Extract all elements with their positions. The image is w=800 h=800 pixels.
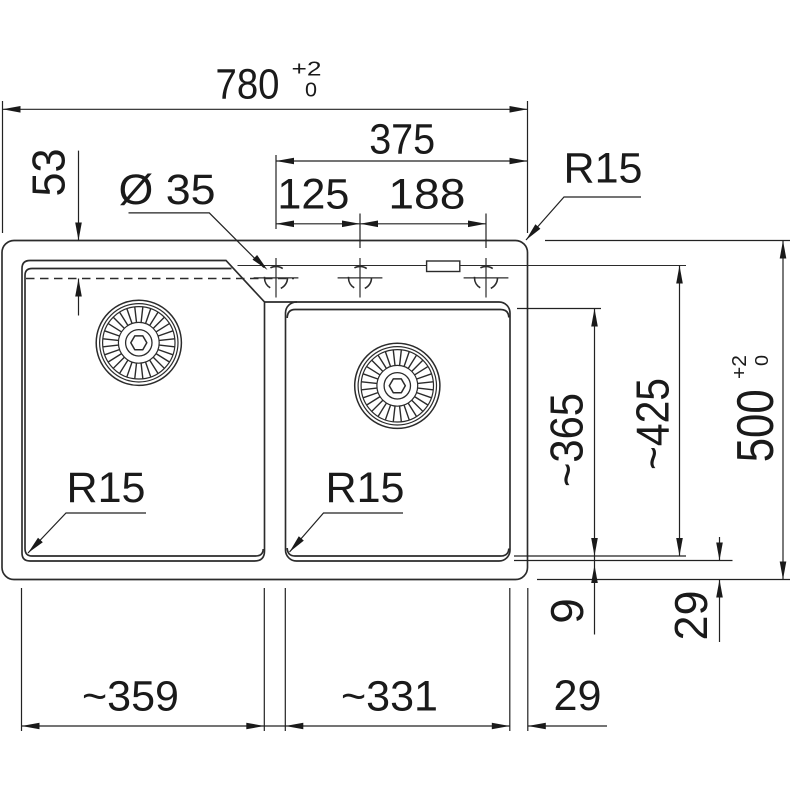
svg-text:~359: ~359 (82, 673, 179, 721)
svg-text:29: 29 (665, 591, 717, 641)
svg-text:500: 500 (727, 389, 785, 462)
svg-text:Ø 35: Ø 35 (119, 166, 216, 214)
svg-text:~365: ~365 (541, 393, 593, 487)
svg-text:R15: R15 (564, 145, 643, 193)
svg-text:0: 0 (305, 80, 317, 102)
svg-text:188: 188 (388, 171, 465, 219)
svg-text:29: 29 (554, 672, 602, 720)
svg-text:~331: ~331 (341, 673, 438, 721)
svg-text:375: 375 (369, 115, 435, 163)
svg-text:+2: +2 (729, 355, 751, 379)
svg-text:R15: R15 (67, 464, 146, 512)
svg-text:R15: R15 (326, 464, 405, 512)
svg-text:0: 0 (752, 355, 772, 366)
svg-text:~425: ~425 (627, 378, 679, 470)
svg-text:780: 780 (216, 61, 280, 109)
svg-text:53: 53 (23, 149, 75, 197)
svg-text:125: 125 (277, 171, 349, 219)
svg-text:9: 9 (541, 598, 593, 624)
svg-text:+2: +2 (292, 58, 322, 80)
